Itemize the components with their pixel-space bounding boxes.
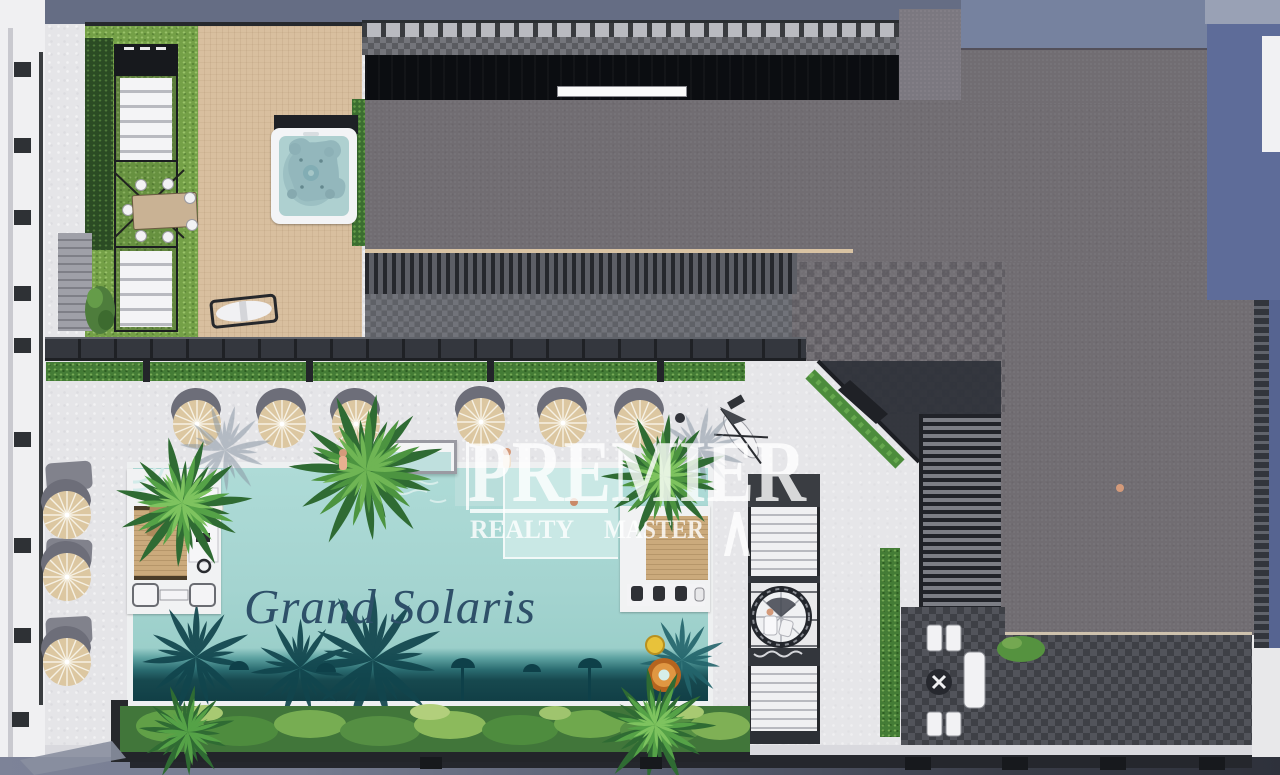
svg-text:PREMIER: PREMIER (468, 424, 807, 521)
svg-text:Grand Solaris: Grand Solaris (244, 579, 536, 634)
svg-text:MASTER: MASTER (604, 515, 704, 544)
svg-text:REALTY: REALTY (470, 515, 574, 544)
